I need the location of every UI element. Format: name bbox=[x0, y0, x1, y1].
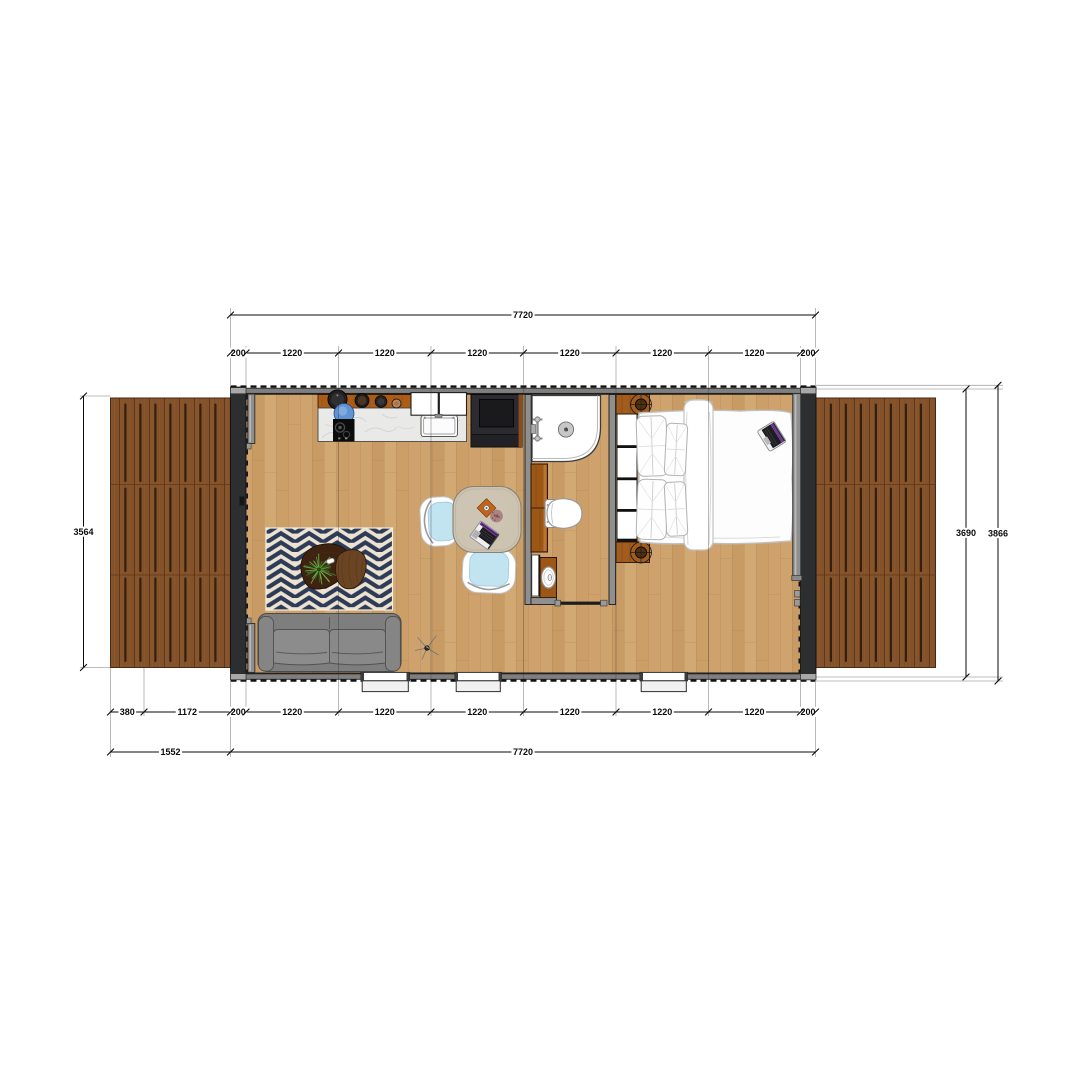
svg-text:1220: 1220 bbox=[744, 348, 764, 358]
svg-text:380: 380 bbox=[120, 707, 135, 717]
svg-text:1220: 1220 bbox=[652, 707, 672, 717]
svg-text:1220: 1220 bbox=[652, 348, 672, 358]
svg-text:1220: 1220 bbox=[467, 348, 487, 358]
svg-text:200: 200 bbox=[800, 707, 815, 717]
svg-text:1220: 1220 bbox=[467, 707, 487, 717]
svg-text:3690: 3690 bbox=[956, 528, 976, 538]
svg-text:1220: 1220 bbox=[375, 707, 395, 717]
svg-text:1220: 1220 bbox=[744, 707, 764, 717]
svg-text:1220: 1220 bbox=[560, 348, 580, 358]
svg-text:1220: 1220 bbox=[375, 348, 395, 358]
svg-text:7720: 7720 bbox=[513, 310, 533, 320]
svg-text:1220: 1220 bbox=[560, 707, 580, 717]
svg-text:3564: 3564 bbox=[73, 527, 93, 537]
svg-text:1220: 1220 bbox=[282, 348, 302, 358]
svg-text:7720: 7720 bbox=[513, 747, 533, 757]
svg-text:1552: 1552 bbox=[160, 747, 180, 757]
svg-text:200: 200 bbox=[800, 348, 815, 358]
svg-text:1220: 1220 bbox=[282, 707, 302, 717]
svg-text:3866: 3866 bbox=[988, 528, 1008, 538]
svg-text:1172: 1172 bbox=[177, 707, 197, 717]
